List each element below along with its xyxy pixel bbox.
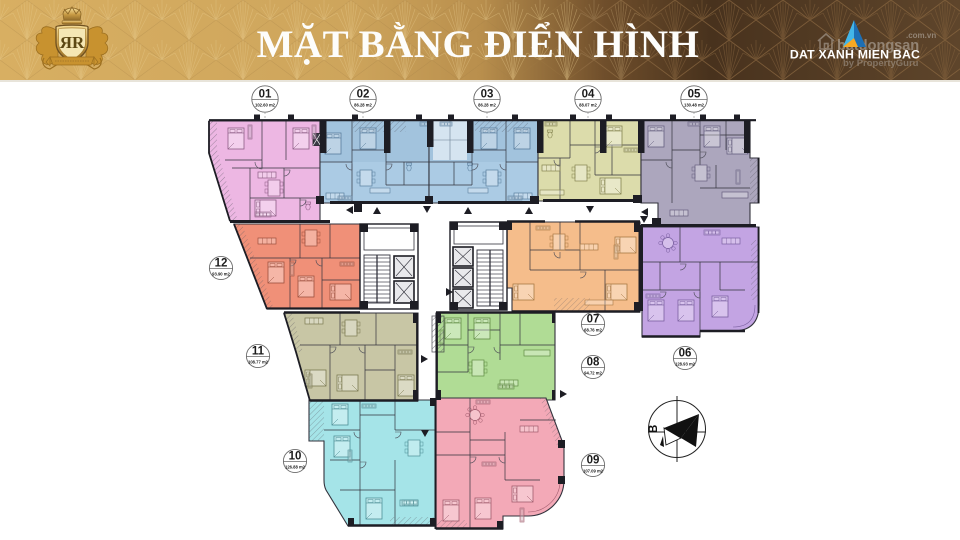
svg-text:ЯR: ЯR [60, 33, 85, 52]
svg-text:B: B [648, 425, 660, 433]
svg-text:86.28 m2: 86.28 m2 [354, 103, 372, 108]
svg-text:12: 12 [215, 258, 228, 270]
svg-text:.com.vn: .com.vn [906, 31, 936, 40]
svg-text:05: 05 [688, 89, 701, 101]
svg-text:94.72 m2: 94.72 m2 [584, 371, 602, 376]
svg-text:06: 06 [679, 348, 692, 360]
svg-text:68.76 m2: 68.76 m2 [584, 328, 602, 333]
svg-text:93.90 m2: 93.90 m2 [212, 272, 230, 277]
svg-text:DAT XANH MIEN BAC: DAT XANH MIEN BAC [790, 48, 920, 62]
svg-text:11: 11 [252, 346, 265, 358]
svg-text:86.28 m2: 86.28 m2 [478, 103, 496, 108]
svg-text:128.93 m2: 128.93 m2 [675, 362, 696, 367]
svg-text:07: 07 [587, 314, 600, 326]
svg-text:04: 04 [582, 89, 595, 101]
svg-text:09: 09 [587, 455, 600, 467]
svg-text:02: 02 [357, 89, 370, 101]
svg-text:88.07 m2: 88.07 m2 [579, 103, 597, 108]
svg-text:10: 10 [289, 451, 302, 463]
svg-text:130.48 m2: 130.48 m2 [684, 103, 705, 108]
svg-text:102.60 m2: 102.60 m2 [255, 103, 276, 108]
svg-text:107.09 m2: 107.09 m2 [583, 469, 604, 474]
svg-text:126.88 m2: 126.88 m2 [285, 465, 306, 470]
svg-text:01: 01 [259, 89, 272, 101]
svg-text:03: 03 [481, 89, 494, 101]
svg-text:MẶT BẰNG ĐIỂN HÌNH: MẶT BẰNG ĐIỂN HÌNH [257, 20, 700, 66]
svg-text:108.77 m2: 108.77 m2 [248, 360, 269, 365]
svg-text:08: 08 [587, 357, 600, 369]
